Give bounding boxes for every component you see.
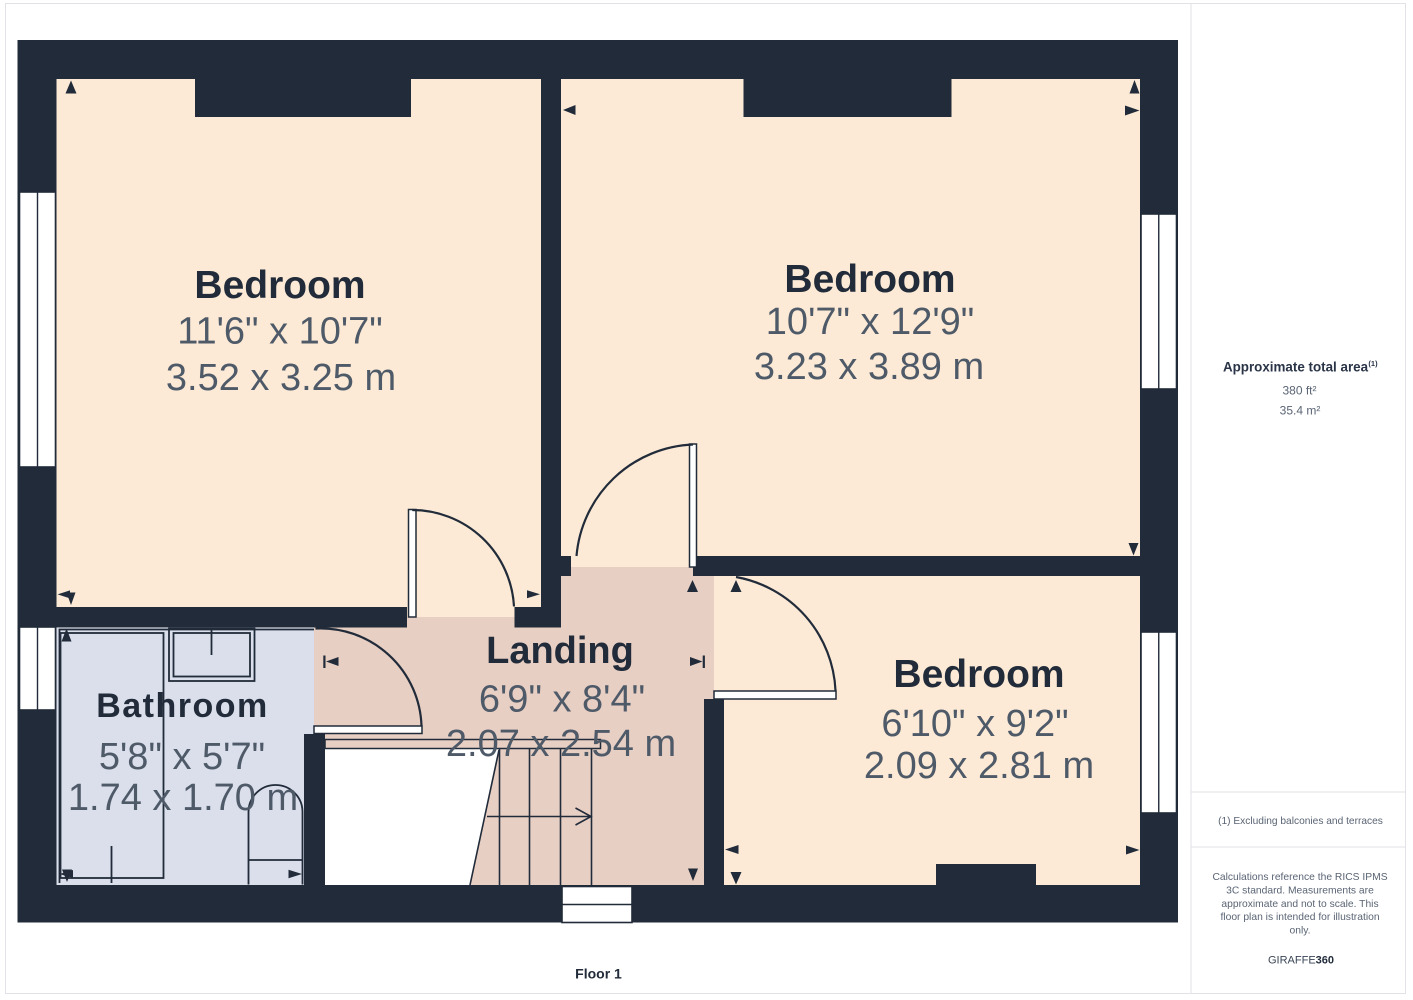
svg-text:approximate and not to scale.: approximate and not to scale. This (1221, 899, 1378, 910)
svg-text:6'9" x 8'4": 6'9" x 8'4" (479, 679, 645, 721)
svg-text:Bedroom: Bedroom (893, 653, 1064, 696)
svg-text:6'10" x 9'2": 6'10" x 9'2" (881, 703, 1068, 745)
svg-text:Calculations reference the RIC: Calculations reference the RICS IPMS (1212, 872, 1387, 883)
svg-text:11'6" x 10'7": 11'6" x 10'7" (177, 311, 383, 353)
svg-text:1.74 x 1.70 m: 1.74 x 1.70 m (68, 777, 298, 819)
svg-text:2.09 x 2.81 m: 2.09 x 2.81 m (864, 745, 1094, 787)
svg-text:5'8" x 5'7": 5'8" x 5'7" (99, 736, 265, 778)
svg-text:only.: only. (1290, 926, 1311, 937)
svg-text:3.52 x 3.25 m: 3.52 x 3.25 m (166, 357, 396, 399)
svg-text:3.23 x 3.89 m: 3.23 x 3.89 m (754, 346, 984, 388)
svg-text:380 ft²: 380 ft² (1282, 384, 1316, 398)
svg-text:GIRAFFE360: GIRAFFE360 (1268, 955, 1334, 967)
svg-text:floor plan is intended for ill: floor plan is intended for illustration (1220, 912, 1379, 923)
svg-text:3C standard. Measurements are: 3C standard. Measurements are (1226, 885, 1374, 896)
svg-text:Approximate total area: Approximate total area (1223, 360, 1369, 375)
svg-text:35.4 m²: 35.4 m² (1280, 403, 1321, 417)
svg-text:Landing: Landing (486, 630, 634, 672)
svg-text:Bathroom: Bathroom (96, 687, 269, 725)
svg-text:2.07 x 2.54 m: 2.07 x 2.54 m (446, 723, 676, 765)
svg-text:(1): (1) (1368, 359, 1378, 368)
svg-text:10'7" x 12'9": 10'7" x 12'9" (766, 301, 974, 343)
svg-text:Bedroom: Bedroom (784, 258, 955, 301)
svg-text:Bedroom: Bedroom (194, 264, 365, 307)
svg-text:Floor 1: Floor 1 (575, 966, 622, 982)
svg-text:(1) Excluding balconies and te: (1) Excluding balconies and terraces (1218, 816, 1383, 827)
